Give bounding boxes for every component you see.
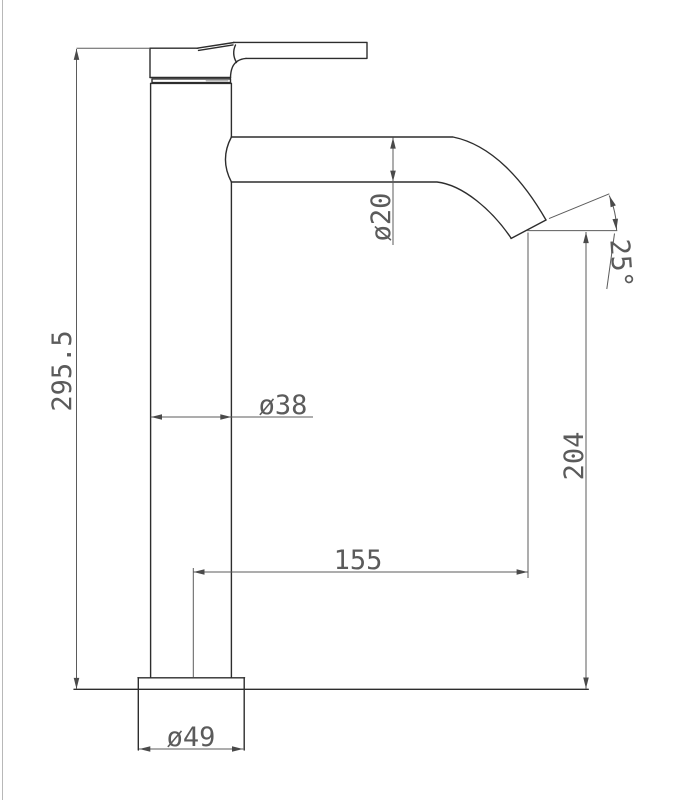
dimension-labels: 295.5 ø20 ø38 155 204 ø49 25° [47,193,638,753]
dim-overall-height-line [77,48,151,689]
faucet-technical-drawing: 295.5 ø20 ø38 155 204 ø49 25° [0,0,680,800]
dim-label-outlet-angle: 25° [603,238,637,289]
drawing-sheet: 295.5 ø20 ø38 155 204 ø49 25° [0,0,680,800]
body-outline [151,83,232,677]
dimension-arrowheads [74,49,619,752]
handle-base-outline [150,48,231,77]
handle-lever-outline [197,42,367,78]
dim-reach-line [193,233,528,678]
faucet-outline [74,42,588,750]
cartridge-ring-outline [152,79,231,83]
dim-label-spout-od: ø20 [366,193,397,242]
dim-label-base-od: ø49 [167,722,216,753]
dim-label-reach: 155 [334,545,383,576]
dim-label-outlet-height: 204 [559,432,590,481]
dim-label-overall-height: 295.5 [47,330,78,411]
dimension-lines [77,48,618,749]
dim-label-body-od: ø38 [259,390,308,421]
